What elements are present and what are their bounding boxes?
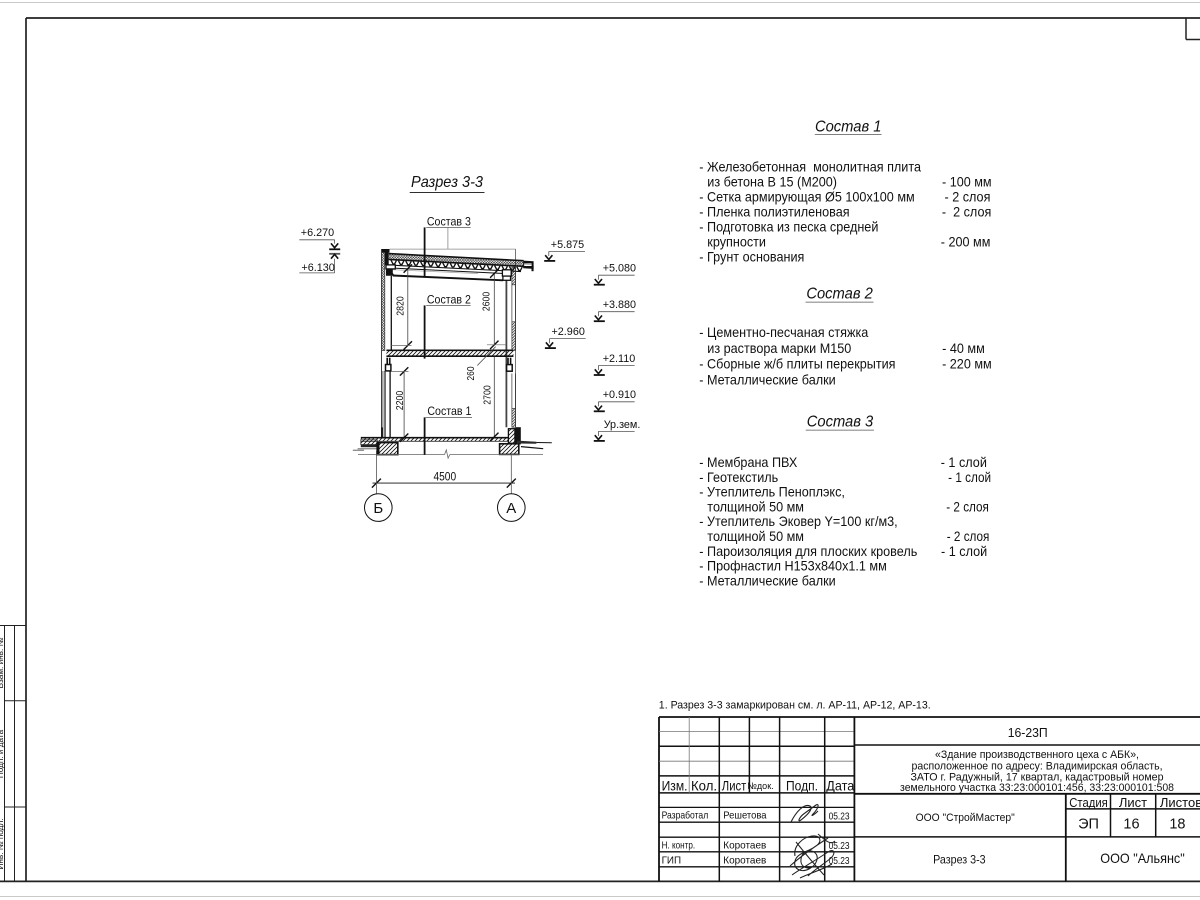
svg-text:толщиной 50 мм: толщиной 50 мм bbox=[707, 528, 804, 544]
svg-text:- 100 мм: - 100 мм bbox=[942, 173, 992, 189]
svg-text:+3.880: +3.880 bbox=[603, 299, 636, 311]
svg-text:толщиной 50 мм: толщиной 50 мм bbox=[707, 498, 804, 514]
svg-text:- 1 слой: - 1 слой bbox=[941, 543, 987, 559]
svg-text:ООО "Альянс": ООО "Альянс" bbox=[1100, 850, 1185, 866]
svg-text:2820: 2820 bbox=[395, 296, 406, 316]
svg-text:Состав 3: Состав 3 bbox=[427, 214, 471, 228]
svg-text:4500: 4500 bbox=[433, 471, 456, 484]
svg-text:- 1 слой: - 1 слой bbox=[945, 469, 991, 485]
svg-text:+0.910: +0.910 bbox=[603, 389, 636, 401]
svg-text:2600: 2600 bbox=[482, 291, 493, 311]
svg-text:крупности: крупности bbox=[707, 234, 766, 250]
svg-text:+6.130: +6.130 bbox=[301, 262, 334, 274]
svg-text:- 40 мм: - 40 мм bbox=[942, 340, 985, 356]
svg-text:- 2 слоя: - 2 слоя bbox=[942, 203, 991, 219]
svg-text:+2.960: +2.960 bbox=[552, 326, 585, 338]
svg-text:Стадия: Стадия bbox=[1069, 795, 1108, 810]
svg-text:- 220 мм: - 220 мм bbox=[942, 356, 992, 372]
svg-text:- Утеплитель Пеноплэкс,: - Утеплитель Пеноплэкс, bbox=[699, 484, 845, 500]
svg-text:Б: Б bbox=[373, 500, 383, 517]
svg-text:- Утеплитель Эковер Y=100 кг/м: - Утеплитель Эковер Y=100 кг/м3, bbox=[699, 513, 897, 529]
svg-text:- Металлические балки: - Металлические балки bbox=[699, 572, 835, 588]
svg-text:+5.875: +5.875 bbox=[551, 239, 584, 251]
svg-text:Разработал: Разработал bbox=[662, 810, 709, 822]
svg-text:18: 18 bbox=[1169, 817, 1185, 833]
svg-text:- Цементно-песчаная стяжка: - Цементно-песчаная стяжка bbox=[699, 324, 868, 340]
svg-text:- 1 слой: - 1 слой bbox=[941, 454, 987, 470]
svg-text:- Железобетонная монолитная п: - Железобетонная монолитная плита bbox=[699, 158, 921, 174]
svg-text:Изм.: Изм. bbox=[662, 778, 688, 793]
svg-text:из раствора марки М150: из раствора марки М150 bbox=[707, 340, 851, 356]
svg-text:- Сетка армирующая Ø5 100х100: - Сетка армирующая Ø5 100х100 мм bbox=[699, 188, 914, 204]
svg-text:Лист: Лист bbox=[1119, 795, 1147, 810]
svg-text:Разрез 3-3: Разрез 3-3 bbox=[933, 852, 986, 866]
svg-text:Листов: Листов bbox=[1160, 795, 1200, 810]
svg-text:ООО "СтройМастер": ООО "СтройМастер" bbox=[916, 812, 1015, 824]
svg-text:ЭП: ЭП bbox=[1078, 817, 1099, 833]
svg-text:Взам. инв. №: Взам. инв. № bbox=[0, 637, 5, 688]
svg-text:Состав 3: Состав 3 bbox=[807, 413, 874, 430]
svg-text:- Пленка полиэтиленовая: - Пленка полиэтиленовая bbox=[699, 203, 849, 219]
svg-text:- Профнастил Н153х840х1.1 мм: - Профнастил Н153х840х1.1 мм bbox=[699, 558, 887, 574]
svg-text:Кол.: Кол. bbox=[691, 778, 717, 793]
svg-text:+6.270: +6.270 bbox=[301, 227, 334, 239]
svg-text:Инв. № подл.: Инв. № подл. bbox=[0, 819, 5, 870]
svg-text:из бетона В 15 (М200): из бетона В 15 (М200) bbox=[707, 173, 837, 189]
svg-text:Состав 2: Состав 2 bbox=[806, 285, 873, 302]
svg-text:+2.110: +2.110 bbox=[603, 353, 636, 365]
svg-text:1. Разрез 3-3 замаркирован см.: 1. Разрез 3-3 замаркирован см. л. АР-11,… bbox=[659, 700, 931, 712]
svg-text:- Подготовка из песка средней: - Подготовка из песка средней bbox=[699, 219, 878, 235]
svg-text:Дата: Дата bbox=[826, 778, 854, 793]
svg-text:Решетова: Решетова bbox=[723, 811, 766, 822]
svg-text:- 2 слоя: - 2 слоя bbox=[943, 498, 989, 514]
svg-text:ГИП: ГИП bbox=[662, 855, 682, 866]
svg-text:Состав 1: Состав 1 bbox=[815, 118, 882, 135]
svg-text:Состав 2: Состав 2 bbox=[427, 293, 471, 307]
svg-text:Разрез 3-3: Разрез 3-3 bbox=[411, 174, 483, 191]
svg-text:16: 16 bbox=[1123, 817, 1139, 833]
svg-text:- 200 мм: - 200 мм bbox=[941, 234, 991, 250]
svg-text:Подп. и дата: Подп. и дата bbox=[0, 729, 5, 778]
svg-text:- Геотекстиль: - Геотекстиль bbox=[699, 469, 778, 485]
svg-text:Состав 1: Состав 1 bbox=[427, 404, 471, 418]
svg-text:- 2 слоя: - 2 слоя bbox=[944, 528, 990, 544]
svg-text:- 2 слоя: - 2 слоя bbox=[941, 188, 990, 204]
svg-text:- Пароизоляция для плоских кро: - Пароизоляция для плоских кровель bbox=[699, 543, 917, 559]
svg-text:260: 260 bbox=[466, 366, 477, 380]
svg-text:Н. контр.: Н. контр. bbox=[662, 840, 696, 851]
svg-text:А: А bbox=[506, 500, 516, 517]
svg-text:- Мембрана ПВХ: - Мембрана ПВХ bbox=[699, 454, 798, 470]
svg-text:+5.080: +5.080 bbox=[603, 263, 636, 275]
svg-text:- Сборные ж/б плиты перекрытия: - Сборные ж/б плиты перекрытия bbox=[699, 356, 895, 372]
svg-text:№док.: №док. bbox=[747, 781, 774, 792]
svg-text:Коротаев: Коротаев bbox=[723, 855, 766, 866]
svg-text:- Грунт основания: - Грунт основания bbox=[699, 249, 804, 265]
svg-text:- Металлические балки: - Металлические балки bbox=[699, 371, 835, 387]
svg-text:Коротаев: Коротаев bbox=[723, 840, 766, 851]
svg-text:земельного участка 33:23:00010: земельного участка 33:23:000101:456, 33:… bbox=[900, 782, 1174, 794]
svg-text:Ур.зем.: Ур.зем. bbox=[604, 419, 641, 431]
svg-text:2200: 2200 bbox=[395, 390, 406, 410]
svg-text:Подп.: Подп. bbox=[786, 778, 818, 793]
svg-text:Лист: Лист bbox=[722, 778, 747, 793]
svg-text:05.23: 05.23 bbox=[829, 811, 850, 822]
svg-text:16-23П: 16-23П bbox=[1008, 725, 1048, 740]
svg-text:2700: 2700 bbox=[482, 385, 493, 405]
